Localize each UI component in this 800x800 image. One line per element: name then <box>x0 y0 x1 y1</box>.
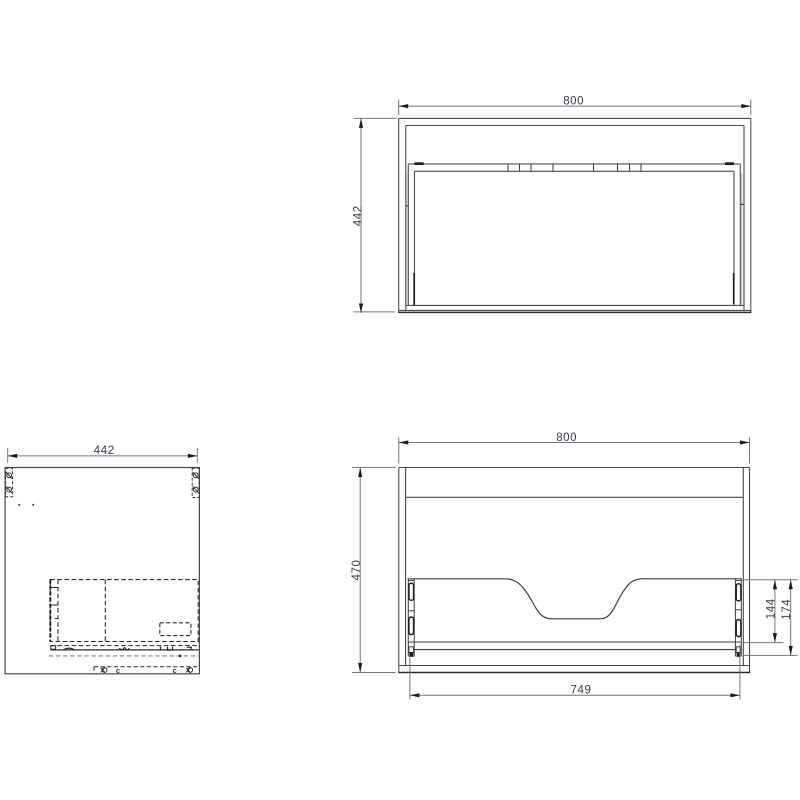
svg-text:144: 144 <box>765 598 777 619</box>
svg-text:800: 800 <box>563 95 584 107</box>
svg-text:c: c <box>173 666 177 675</box>
svg-text:174: 174 <box>781 599 793 620</box>
svg-text:800: 800 <box>556 432 577 444</box>
svg-text:470: 470 <box>351 560 363 581</box>
svg-text:442: 442 <box>352 205 364 226</box>
svg-text:c: c <box>116 666 120 675</box>
svg-text:442: 442 <box>94 445 115 457</box>
svg-text:749: 749 <box>571 685 592 697</box>
